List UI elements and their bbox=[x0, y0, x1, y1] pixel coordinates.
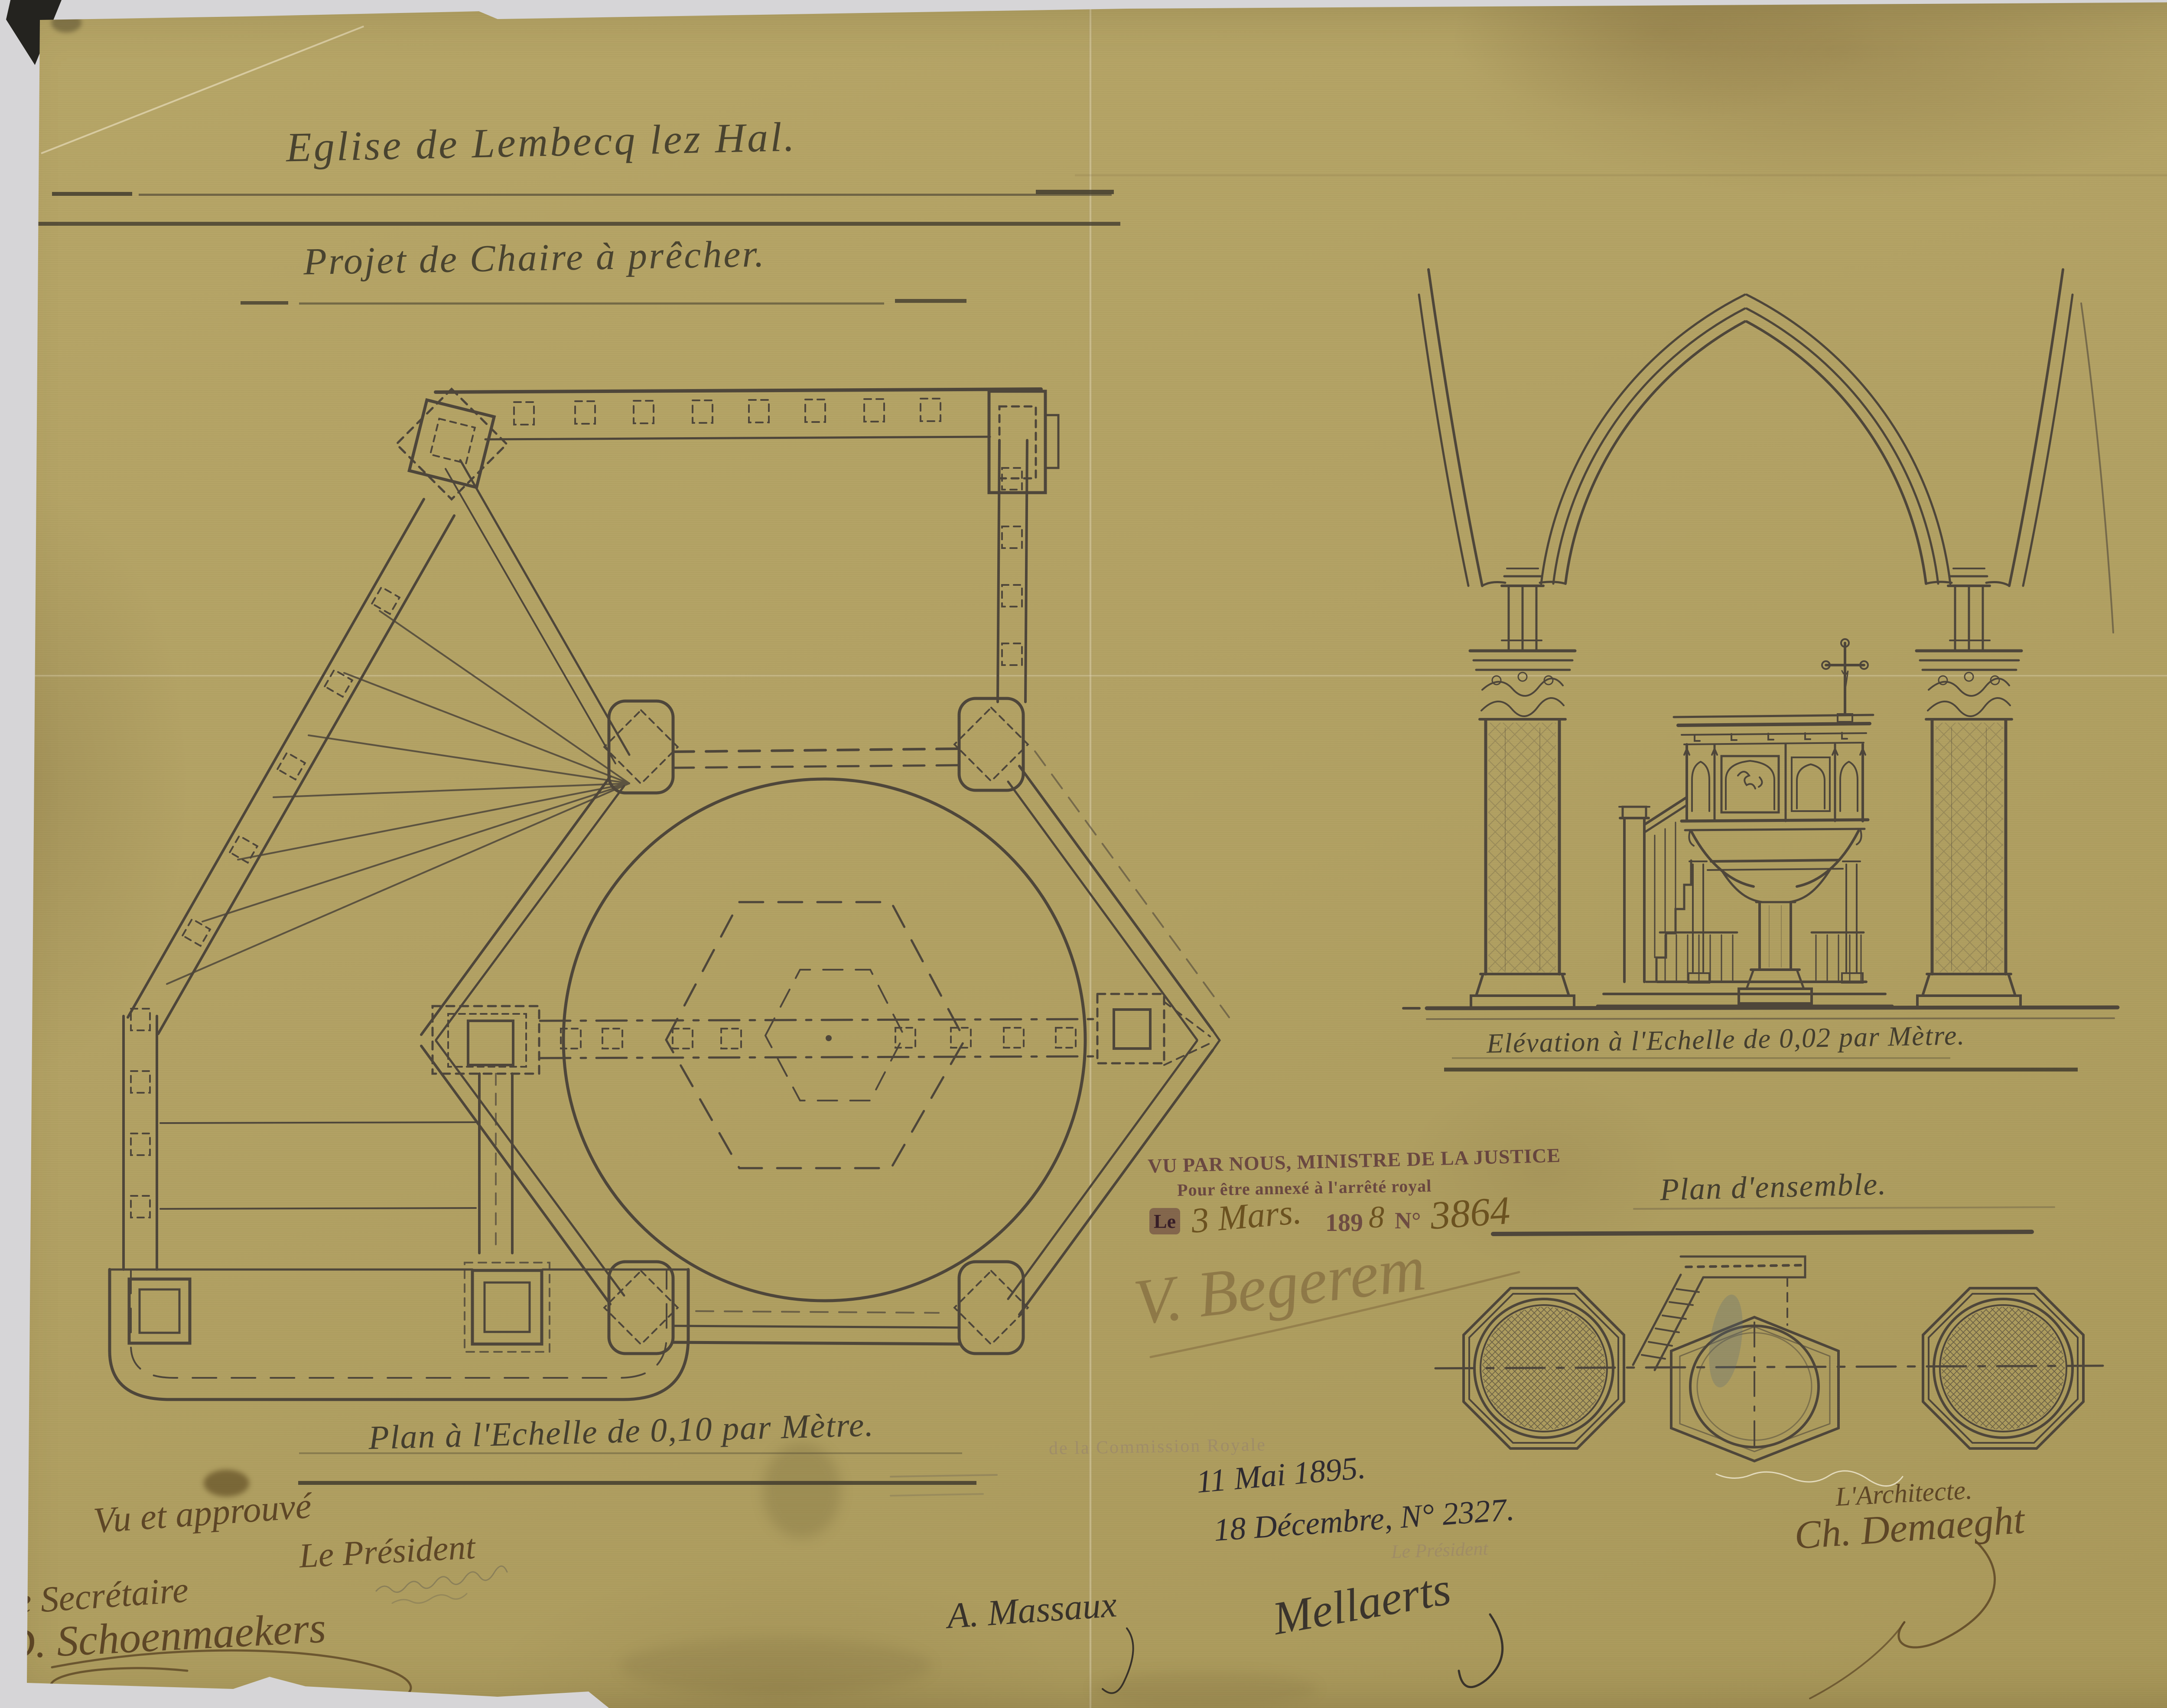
tracing-paper: Eglise de Lembecq lez Hal. Projet de Cha… bbox=[0, 0, 2167, 1708]
stamp-no-label: N° bbox=[1395, 1207, 1421, 1234]
subtitle-underline bbox=[299, 302, 884, 305]
pulpit-elevation-drawing bbox=[1403, 270, 2118, 1019]
stamp-year-printed: 189 bbox=[1325, 1208, 1363, 1237]
pulpit-plan-drawing bbox=[110, 389, 1229, 1400]
subtitle-underline-left bbox=[241, 301, 288, 305]
subtitle-underline-right bbox=[895, 299, 966, 303]
elevation-caption-rule bbox=[1444, 1068, 2078, 1072]
title-underline-left bbox=[52, 192, 132, 196]
title-underline-right bbox=[1036, 190, 1114, 194]
elevation-caption-underline bbox=[1452, 1057, 1950, 1059]
ghost-president-text: Le Président bbox=[1391, 1537, 1488, 1563]
ghost-stamp-text: de la Commission Royale bbox=[1049, 1435, 1267, 1459]
ensemble-plan-drawing bbox=[1435, 1207, 2103, 1486]
ministry-stamp-le-blob: Le bbox=[1149, 1208, 1180, 1234]
plan-caption-underline bbox=[299, 1452, 962, 1454]
title-rule-2 bbox=[24, 222, 1120, 226]
scanned-drawing-sheet: Eglise de Lembecq lez Hal. Projet de Cha… bbox=[0, 0, 2167, 1708]
title-underline bbox=[139, 194, 1112, 196]
sheet-subtitle: Projet de Chaire à prêcher. bbox=[303, 232, 766, 284]
stamp-no-value: 3864 bbox=[1429, 1187, 1512, 1239]
ensemble-caption: Plan d'ensemble. bbox=[1659, 1166, 1887, 1208]
plan-caption-rule bbox=[298, 1481, 976, 1485]
stamp-year-digit: 8 bbox=[1369, 1199, 1384, 1235]
